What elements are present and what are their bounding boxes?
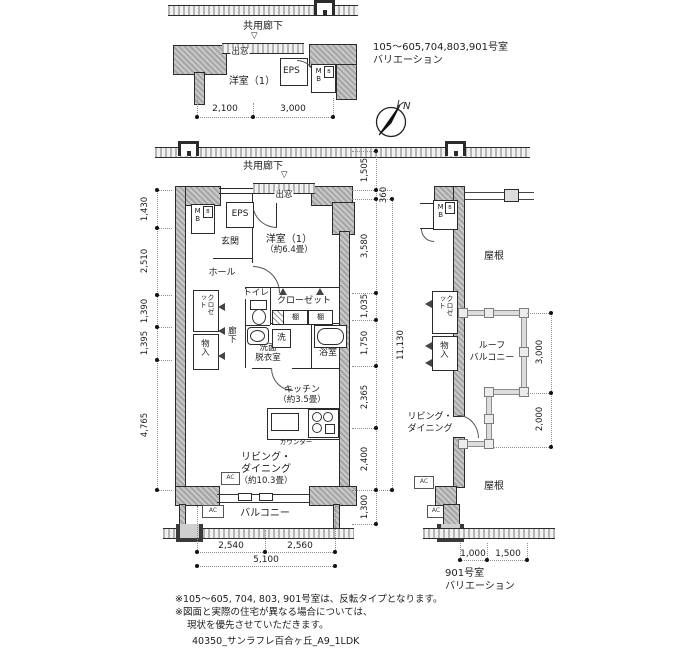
toilet-icon	[252, 309, 266, 325]
roof-box	[504, 189, 519, 202]
dim-label: 3,000	[280, 104, 306, 114]
dim-line	[157, 190, 158, 490]
label-bathroom: 浴室	[319, 348, 337, 358]
dim-label: 360	[380, 187, 390, 203]
dim-label: 2,540	[218, 541, 244, 551]
dim-ext	[158, 327, 172, 328]
grill-icon	[325, 424, 335, 434]
dim-label: 1,430	[141, 197, 151, 221]
bay-window-marker: ▽	[251, 32, 258, 42]
washer-box: 洗	[272, 329, 291, 348]
bathtub-inner-icon	[317, 328, 344, 345]
ac-box: AC	[221, 472, 240, 485]
compass-icon: N	[372, 96, 416, 142]
dim-ext	[494, 447, 551, 448]
dim-label-total: 11,130	[397, 330, 407, 360]
dim-dot	[155, 325, 159, 329]
dim-dot	[374, 197, 378, 201]
dim-ext	[158, 360, 172, 361]
variation-note-line1: 105〜605,704,803,901号室	[373, 42, 508, 53]
label-bay-window: 出窓	[230, 48, 249, 58]
dim-ext	[197, 96, 198, 117]
dim-label: 1,750	[361, 331, 371, 355]
dim-dot	[155, 293, 159, 297]
label-roof-balcony-1: ルーフ	[479, 341, 505, 351]
expansion-joint-dot	[187, 151, 191, 156]
dim-dot	[251, 115, 255, 119]
right-plan-caption-2: バリエーション	[445, 581, 515, 592]
label-entrance: 玄関	[221, 237, 239, 247]
wall-line	[219, 193, 255, 194]
wall	[435, 486, 457, 506]
drawing-title: 40350_サンラフレ百合ヶ丘_A9_1LDK	[192, 637, 359, 648]
corridor-hatch-band	[155, 147, 530, 158]
expansion-joint-dot	[454, 151, 458, 156]
label-bay-window-main: 出窓	[274, 191, 293, 201]
washbasin-bowl-icon	[250, 330, 265, 342]
dim-dot	[374, 522, 378, 526]
burner-icon	[312, 423, 322, 433]
wall	[194, 72, 205, 105]
door-swing-mark	[425, 342, 432, 350]
door-leaf	[276, 203, 277, 227]
wall-line	[292, 368, 339, 369]
railing-post	[484, 387, 494, 397]
railing-post	[519, 387, 529, 397]
dim-ext	[158, 490, 172, 491]
dim-ext	[352, 524, 376, 525]
dim-label: 4,765	[141, 413, 151, 437]
label-meter-box: MB	[314, 67, 322, 89]
burner-icon	[323, 412, 333, 422]
railing-post	[519, 347, 529, 357]
wall	[175, 186, 186, 488]
wall-line	[219, 188, 255, 189]
railing-post	[484, 308, 494, 318]
dim-ext	[352, 151, 376, 152]
door-swing-mark	[218, 327, 225, 335]
dim-dot	[374, 149, 378, 153]
label-living-2: ダイニング	[241, 464, 291, 475]
wall-line	[245, 325, 270, 326]
roof-edge-band	[423, 528, 555, 539]
dim-line	[376, 151, 377, 524]
dim-ext	[265, 530, 266, 552]
drain-hook-icon	[176, 524, 203, 542]
dim-line	[197, 566, 335, 567]
railing-post	[458, 308, 468, 318]
expansion-joint-icon	[178, 141, 199, 156]
dim-label: 3,580	[361, 234, 371, 258]
dim-ext	[335, 506, 336, 552]
variation-note-line2: バリエーション	[373, 55, 443, 66]
dim-ext	[527, 393, 551, 394]
label-corridor-inner: 廊下	[226, 326, 235, 348]
shelf-right: 棚	[308, 310, 333, 325]
dim-ext	[527, 313, 551, 314]
floor-plan-sheet: 共用廊下 ▽ 出窓 EPS MB B 洋室（1） 2,100 3,000 105…	[0, 0, 700, 650]
label-hall: ホール	[208, 268, 235, 278]
wall-line	[270, 287, 271, 325]
wall	[173, 45, 227, 75]
dim-dot	[390, 488, 394, 492]
window-handle	[238, 493, 252, 501]
wall-line	[252, 368, 271, 369]
door-swing-mark	[316, 288, 324, 295]
dim-ext	[352, 428, 376, 429]
railing-post	[484, 414, 494, 424]
right-plan-caption-1: 901号室	[445, 568, 484, 579]
dim-ext	[352, 366, 376, 367]
label-roof-upper: 屋根	[484, 251, 504, 262]
label-eps-main: EPS	[232, 209, 249, 219]
dim-dot	[195, 564, 199, 568]
kitchen-sink-icon	[271, 413, 299, 431]
door-swing-mark	[218, 303, 225, 311]
roof-edge-line	[462, 192, 534, 200]
dim-label: 3,000	[536, 340, 546, 364]
railing-post	[458, 439, 468, 449]
label-closet: クローゼット	[277, 296, 331, 306]
wall-line	[420, 203, 433, 204]
railing	[462, 310, 526, 316]
railing-post	[484, 439, 494, 449]
dim-label: 1,505	[361, 158, 371, 182]
dim-label: 1,395	[141, 331, 151, 355]
dim-dot	[155, 488, 159, 492]
label-corridor-top: 共用廊下	[243, 21, 283, 32]
dim-dot	[263, 550, 267, 554]
label-western-room-top: 洋室（1）	[229, 76, 275, 87]
dim-dot	[155, 226, 159, 230]
wall-line	[245, 287, 246, 368]
dim-dot	[333, 564, 337, 568]
dim-dot	[155, 188, 159, 192]
dim-ext	[352, 490, 392, 491]
door-swing-mark	[425, 359, 432, 367]
label-toilet: トイレ	[243, 289, 269, 299]
dim-ext	[158, 190, 172, 191]
wall	[339, 231, 350, 488]
dim-ext	[197, 506, 198, 552]
door-arc	[421, 229, 434, 242]
dim-dot	[374, 364, 378, 368]
dim-label: 2,400	[361, 447, 371, 471]
dim-line	[392, 199, 393, 490]
wall-line	[311, 323, 312, 368]
dim-dot	[195, 115, 199, 119]
dim-label: 2,000	[536, 407, 546, 431]
label-living-size: （約10.3畳）	[240, 477, 293, 487]
dim-line	[551, 313, 552, 447]
dim-dot	[549, 311, 553, 315]
label-meter-box: MB	[436, 203, 444, 225]
dim-line	[197, 117, 333, 118]
shelf-left: 棚	[283, 310, 308, 325]
dim-label: 2,100	[212, 104, 238, 114]
label-living-right-2: ダイニング	[407, 424, 452, 434]
label-living-1: リビング・	[241, 452, 291, 463]
dim-dot	[525, 558, 529, 562]
dim-ext	[158, 295, 172, 296]
meter-box-sub: B	[324, 66, 334, 78]
dim-label: 1,000	[460, 549, 486, 559]
dim-label: 2,365	[361, 385, 371, 409]
burner-icon	[312, 412, 322, 422]
label-kitchen: キッチン	[284, 385, 320, 395]
label-storage: 物入	[199, 339, 208, 365]
dim-label-total: 5,100	[251, 555, 281, 565]
label-roof-lower: 屋根	[484, 481, 504, 492]
ac-box: AC	[414, 476, 434, 489]
label-western-room-size: （約6.4畳）	[265, 246, 313, 256]
dim-dot	[333, 550, 337, 554]
footnote-line2: ※図面と実際の住宅が異なる場合については、	[175, 608, 373, 619]
dim-dot	[195, 550, 199, 554]
window-handle	[259, 493, 273, 501]
wall	[175, 486, 220, 506]
dim-label: 1,500	[495, 549, 521, 559]
label-counter: カウンター	[280, 439, 313, 446]
footnote-line1: ※105〜605, 704, 803, 901号室は、反転タイプとなります。	[175, 595, 443, 606]
ac-box: AC	[202, 505, 224, 518]
label-washroom-2: 脱衣室	[255, 354, 281, 364]
dim-dot	[155, 358, 159, 362]
dim-label: 1,035	[361, 294, 371, 318]
door-swing-mark	[218, 352, 225, 360]
step-line	[213, 258, 252, 259]
label-kitchen-size: （約3.5畳）	[278, 396, 326, 406]
dim-ext	[158, 228, 172, 229]
expansion-joint-dot	[323, 10, 327, 15]
dim-dot	[374, 488, 378, 492]
dim-line	[460, 560, 527, 561]
compass-n-label: N	[403, 101, 411, 112]
label-balcony: バルコニー	[240, 508, 290, 519]
dim-dot	[374, 318, 378, 322]
label-closet-hall: クロゼット	[196, 294, 214, 320]
expansion-joint-icon	[314, 0, 335, 15]
dim-dot	[374, 291, 378, 295]
dim-dot	[549, 445, 553, 449]
dim-dot	[390, 197, 394, 201]
wall	[336, 64, 357, 100]
expansion-joint-icon	[445, 141, 466, 156]
dim-label: 1,300	[361, 495, 371, 519]
footnote-line3: 現状を優先させていただきます。	[187, 621, 329, 632]
label-living-right-1: リビング・	[407, 412, 452, 422]
bay-window-marker: ▽	[281, 171, 288, 181]
label-meter-box: MB	[193, 207, 201, 229]
dim-label: 1,390	[141, 299, 151, 323]
door-arc	[458, 415, 479, 438]
dim-dot	[549, 391, 553, 395]
dim-label: 2,510	[141, 249, 151, 273]
dim-label: 2,560	[287, 541, 313, 551]
dim-dot	[331, 115, 335, 119]
dim-dot	[374, 426, 378, 430]
door-swing-mark	[425, 300, 432, 308]
label-storage: 物入	[438, 341, 447, 367]
meter-box-sub: B	[445, 202, 455, 214]
door-swing-mark	[279, 288, 287, 295]
label-western-room: 洋室（1）	[266, 234, 312, 245]
label-roof-balcony-2: バルコニー	[470, 353, 515, 363]
dim-ext	[352, 320, 376, 321]
label-corridor-main: 共用廊下	[243, 161, 283, 172]
wall	[309, 486, 357, 506]
meter-box-sub: B	[203, 206, 213, 218]
door-arc	[252, 203, 277, 228]
dim-dot	[374, 188, 378, 192]
label-closet-hall: クロゼット	[435, 295, 453, 321]
